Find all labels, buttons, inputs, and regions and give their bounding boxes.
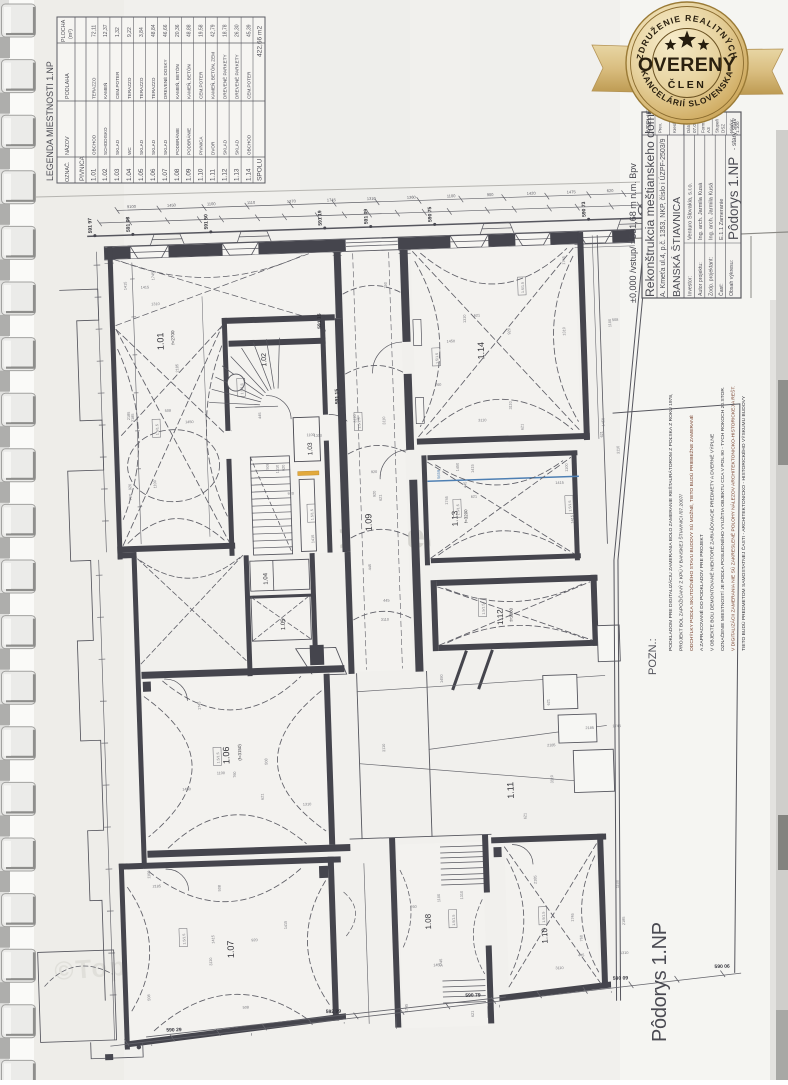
svg-text:26,30: 26,30 xyxy=(234,24,240,37)
svg-text:OBCHOD: OBCHOD xyxy=(246,134,251,155)
svg-text:Zodp. projektant:: Zodp. projektant: xyxy=(708,257,714,296)
svg-text:591 09: 591 09 xyxy=(363,209,370,225)
svg-text:CEM.POTER: CEM.POTER xyxy=(199,71,204,99)
svg-text:1415: 1415 xyxy=(284,921,288,930)
svg-text:1415: 1415 xyxy=(311,535,315,544)
svg-text:CEM.POTER: CEM.POTER xyxy=(115,71,120,99)
svg-text:1475: 1475 xyxy=(567,189,577,194)
svg-text:3110: 3110 xyxy=(478,418,486,422)
svg-text:591 97: 591 97 xyxy=(87,218,94,234)
svg-text:1100: 1100 xyxy=(153,480,157,488)
svg-text:POZN.:: POZN.: xyxy=(647,638,659,675)
svg-text:1.08: 1.08 xyxy=(424,913,434,929)
svg-text:1.12: 1.12 xyxy=(222,168,229,181)
svg-text:1.04: 1.04 xyxy=(263,572,269,585)
svg-text:1420: 1420 xyxy=(527,191,537,196)
svg-text:PODBRÁNIE: PODBRÁNIE xyxy=(174,128,180,155)
svg-text:1100: 1100 xyxy=(437,894,441,902)
svg-text:1415: 1415 xyxy=(570,515,574,524)
svg-text:E.1.1 Zameranie: E.1.1 Zameranie xyxy=(719,199,725,240)
svg-text:1.5/1.5: 1.5/1.5 xyxy=(521,282,525,293)
svg-text:1.04: 1.04 xyxy=(126,168,133,181)
svg-text:9,22: 9,22 xyxy=(127,27,133,37)
svg-text:1745: 1745 xyxy=(562,256,566,265)
svg-text:OBCHOD: OBCHOD xyxy=(91,134,96,155)
svg-text:760: 760 xyxy=(233,771,237,777)
svg-text:621: 621 xyxy=(471,495,477,499)
svg-text:1310: 1310 xyxy=(460,891,464,900)
svg-text:1450: 1450 xyxy=(440,674,444,683)
svg-text:1100: 1100 xyxy=(616,880,620,888)
svg-text:DVOR: DVOR xyxy=(211,141,216,155)
svg-text:Pôdorys 1.NP: Pôdorys 1.NP xyxy=(726,157,741,240)
svg-text:760: 760 xyxy=(435,383,441,387)
svg-text:Pôdorys 1.NP: Pôdorys 1.NP xyxy=(649,922,671,1042)
svg-text:1100: 1100 xyxy=(447,193,457,198)
svg-text:LEGENDA MIESTNOSTI 1.NP: LEGENDA MIESTNOSTI 1.NP xyxy=(45,61,55,181)
svg-text:3110: 3110 xyxy=(555,966,563,970)
svg-text:PIVNICA: PIVNICA xyxy=(79,155,86,181)
svg-text:590 79: 590 79 xyxy=(465,992,481,999)
svg-text:1415: 1415 xyxy=(141,285,150,289)
svg-text:920: 920 xyxy=(282,465,286,471)
svg-text:Prev.: Prev. xyxy=(658,123,663,133)
svg-text:ČLEN: ČLEN xyxy=(668,78,707,91)
svg-text:920: 920 xyxy=(507,328,511,334)
svg-text:445: 445 xyxy=(368,564,372,570)
svg-text:1360: 1360 xyxy=(407,194,417,199)
svg-text:Ing. arch. Jarmila Kusá: Ing. arch. Jarmila Kusá xyxy=(708,182,714,240)
svg-text:508: 508 xyxy=(264,758,268,764)
svg-text:620: 620 xyxy=(607,188,615,193)
svg-text:1.5/1.5: 1.5/1.5 xyxy=(216,752,220,763)
svg-text:445: 445 xyxy=(258,412,262,418)
svg-text:1450: 1450 xyxy=(456,463,460,472)
svg-text:590 29: 590 29 xyxy=(166,1027,182,1034)
svg-text:1745: 1745 xyxy=(405,1004,409,1013)
svg-text:1745: 1745 xyxy=(151,272,155,281)
svg-text:1450: 1450 xyxy=(601,418,605,427)
svg-text:Mierka:: Mierka: xyxy=(729,119,734,133)
svg-text:591 15: 591 15 xyxy=(334,389,341,405)
svg-text:KAMEŇ, BETÓN: KAMEŇ, BETÓN xyxy=(174,64,180,99)
svg-text:2185: 2185 xyxy=(533,875,537,884)
svg-text:1745: 1745 xyxy=(327,197,337,202)
svg-text:621: 621 xyxy=(379,494,383,500)
svg-text:A ZAPRACOVANÉ DO PODKLADOV PRE: A ZAPRACOVANÉ DO PODKLADOV PRE PROJEKT xyxy=(698,534,705,651)
svg-text:1450: 1450 xyxy=(185,420,194,424)
svg-text:1:100: 1:100 xyxy=(735,121,740,133)
svg-text:1100: 1100 xyxy=(565,463,569,471)
svg-text:1.10: 1.10 xyxy=(198,168,205,181)
svg-text:760: 760 xyxy=(128,494,132,500)
svg-text:1.01: 1.01 xyxy=(155,332,166,350)
svg-text:(f=3150): (f=3150) xyxy=(237,744,243,761)
svg-text:1450: 1450 xyxy=(447,339,456,343)
svg-text:SPOLU: SPOLU xyxy=(257,158,264,181)
svg-text:1.13: 1.13 xyxy=(233,168,240,181)
svg-text:1310: 1310 xyxy=(303,802,312,806)
svg-text:CEM.POTER: CEM.POTER xyxy=(246,71,251,99)
svg-text:SCHODISKO: SCHODISKO xyxy=(103,127,108,155)
svg-text:1100: 1100 xyxy=(207,201,217,206)
svg-text:Autor projektu:: Autor projektu: xyxy=(698,262,704,296)
svg-text:DREVENÉ PARKETY: DREVENÉ PARKETY xyxy=(233,54,239,99)
svg-text:46,66: 46,66 xyxy=(163,24,169,37)
svg-text:KAMEŇ, BETÓN, ZEM: KAMEŇ, BETÓN, ZEM xyxy=(210,52,216,99)
svg-text:f=2700: f=2700 xyxy=(170,330,175,345)
svg-text:1310: 1310 xyxy=(463,314,467,323)
svg-text:SKLAD: SKLAD xyxy=(139,139,144,155)
svg-text:1450: 1450 xyxy=(167,202,177,207)
svg-text:DSZ: DSZ xyxy=(721,124,726,133)
svg-text:445: 445 xyxy=(383,599,389,603)
svg-text:V DIGITALIZÁCII ZAMERANIA NIE: V DIGITALIZÁCII ZAMERANIA NIE SÚ ZAKRESL… xyxy=(729,386,736,651)
svg-text:590 75: 590 75 xyxy=(427,206,434,222)
svg-text:1.5/1.5: 1.5/1.5 xyxy=(435,353,439,364)
svg-text:3110: 3110 xyxy=(209,957,213,965)
svg-text:760: 760 xyxy=(410,905,416,909)
svg-text:PIVNICA: PIVNICA xyxy=(199,136,204,155)
svg-text:621: 621 xyxy=(261,794,265,800)
svg-text:OZNAČ.: OZNAČ. xyxy=(64,162,71,182)
svg-text:1.5/1.5: 1.5/1.5 xyxy=(456,504,460,515)
svg-text:KAMEŇ, BETÓN: KAMEŇ, BETÓN xyxy=(186,64,192,99)
svg-text:DREVENÉ DOSKY: DREVENÉ DOSKY xyxy=(162,59,168,99)
svg-text:SKLAD: SKLAD xyxy=(115,139,120,155)
svg-text:1.14: 1.14 xyxy=(476,342,487,360)
svg-text:TERAZZO: TERAZZO xyxy=(151,77,156,99)
svg-text:1.5/1.5: 1.5/1.5 xyxy=(310,509,314,520)
svg-text:422,66 m2: 422,66 m2 xyxy=(257,26,264,57)
svg-text:1100: 1100 xyxy=(307,433,315,437)
svg-text:SKLAD: SKLAD xyxy=(223,139,228,155)
svg-text:920: 920 xyxy=(251,938,257,942)
svg-text:621: 621 xyxy=(471,1011,475,1017)
svg-text:Obsah výkresu:: Obsah výkresu: xyxy=(729,260,735,296)
svg-text:±0,000 /vstup/ =591,68 m n.m.: ±0,000 /vstup/ =591,68 m n.m. Bpv xyxy=(628,163,638,303)
svg-text:1.07: 1.07 xyxy=(162,168,169,181)
svg-text:1.05: 1.05 xyxy=(281,618,287,631)
svg-text:Ing. arch. Jarmila Kusá: Ing. arch. Jarmila Kusá xyxy=(698,182,704,240)
svg-text:1.05: 1.05 xyxy=(138,168,145,181)
svg-text:PODLAHA: PODLAHA xyxy=(65,73,71,99)
svg-text:PLOCHA: PLOCHA xyxy=(61,19,67,42)
svg-text:900: 900 xyxy=(487,192,495,197)
svg-text:1.5/1.5: 1.5/1.5 xyxy=(357,417,361,428)
svg-text:920: 920 xyxy=(371,470,377,474)
svg-text:KAMEŇ: KAMEŇ xyxy=(102,83,108,99)
svg-text:2185: 2185 xyxy=(152,884,161,888)
svg-text:1310: 1310 xyxy=(276,465,280,474)
svg-text:Stupeň: Stupeň xyxy=(715,119,720,133)
svg-text:508: 508 xyxy=(165,409,171,413)
svg-text:5659: 5659 xyxy=(436,469,441,479)
svg-text:590 73: 590 73 xyxy=(581,201,588,217)
svg-text:1415: 1415 xyxy=(123,282,127,291)
svg-text:445: 445 xyxy=(578,953,584,957)
svg-text:SKLAD: SKLAD xyxy=(234,139,239,155)
svg-text:1310: 1310 xyxy=(151,302,160,306)
svg-text:3,84: 3,84 xyxy=(139,27,145,37)
svg-text:A3: A3 xyxy=(706,127,711,133)
svg-text:1.11: 1.11 xyxy=(210,169,217,181)
svg-text:591 19: 591 19 xyxy=(317,210,324,226)
svg-text:72,11: 72,11 xyxy=(91,25,97,37)
svg-text:45,39: 45,39 xyxy=(246,24,252,37)
svg-text:760: 760 xyxy=(384,282,388,288)
svg-text:1.14: 1.14 xyxy=(245,168,252,181)
svg-text:1.5/1.5: 1.5/1.5 xyxy=(452,915,456,926)
svg-text:1310: 1310 xyxy=(367,196,377,201)
svg-text:SKLAD: SKLAD xyxy=(151,139,156,155)
svg-text:1.09: 1.09 xyxy=(186,168,193,181)
svg-text:508: 508 xyxy=(218,885,222,891)
svg-text:Form.: Form. xyxy=(700,122,705,133)
svg-text:A. Kmeťa ul.4, p.č. 1353, NKP,: A. Kmeťa ul.4, p.č. 1353, NKP, číslo i Ú… xyxy=(658,138,667,297)
svg-text:Investor:: Investor: xyxy=(688,276,694,296)
svg-text:2185: 2185 xyxy=(585,726,594,730)
svg-text:Časť:: Časť: xyxy=(718,283,725,296)
svg-text:9100: 9100 xyxy=(127,204,137,209)
svg-text:1.10: 1.10 xyxy=(540,927,550,943)
svg-text:621: 621 xyxy=(523,813,527,819)
svg-text:3110: 3110 xyxy=(382,416,386,424)
svg-text:42,79: 42,79 xyxy=(211,24,217,37)
svg-text:1.03: 1.03 xyxy=(307,442,314,455)
svg-text:590 09: 590 09 xyxy=(613,975,629,982)
svg-text:TERAZZO: TERAZZO xyxy=(91,77,96,99)
svg-text:920: 920 xyxy=(373,491,377,497)
svg-text:1.5/1.5: 1.5/1.5 xyxy=(155,424,159,435)
svg-text:SKLAD: SKLAD xyxy=(163,139,168,155)
svg-text:18,78: 18,78 xyxy=(223,24,229,37)
svg-text:760: 760 xyxy=(579,935,583,941)
svg-text:1100: 1100 xyxy=(217,771,225,775)
svg-text:1415: 1415 xyxy=(211,935,215,944)
svg-text:1415: 1415 xyxy=(471,464,475,473)
svg-text:TIETO BUDÚ PREDMETOM SAMOSTATN: TIETO BUDÚ PREDMETOM SAMOSTATNEJ ČASTI -… xyxy=(740,395,747,651)
svg-text:1.02: 1.02 xyxy=(102,168,109,181)
svg-text:TERAZZO: TERAZZO xyxy=(139,77,144,99)
svg-text:590 06: 590 06 xyxy=(714,964,730,971)
svg-text:2185: 2185 xyxy=(131,413,135,422)
svg-text:PODKLADOM PRE DIGITALIZÁCIU ZA: PODKLADOM PRE DIGITALIZÁCIU ZAMERANIA BO… xyxy=(667,394,674,651)
svg-text:3110: 3110 xyxy=(509,401,513,409)
svg-text:48,84: 48,84 xyxy=(151,24,157,37)
svg-text:TERAZZO: TERAZZO xyxy=(127,77,132,99)
svg-text:1,32: 1,32 xyxy=(115,27,121,37)
svg-text:2185: 2185 xyxy=(547,743,556,747)
svg-text:2185: 2185 xyxy=(175,364,179,373)
svg-text:1.07: 1.07 xyxy=(225,940,236,958)
svg-text:591 15: 591 15 xyxy=(317,313,324,329)
svg-text:19,58: 19,58 xyxy=(199,24,205,37)
svg-text:20,36: 20,36 xyxy=(175,24,181,37)
svg-text:621: 621 xyxy=(547,699,551,705)
svg-text:1450: 1450 xyxy=(182,787,191,791)
svg-text:1.12: 1.12 xyxy=(496,609,506,625)
svg-text:1.02: 1.02 xyxy=(261,353,268,367)
svg-text:1100: 1100 xyxy=(147,870,151,878)
svg-text:3110: 3110 xyxy=(550,775,554,783)
svg-text:1.06: 1.06 xyxy=(150,168,157,181)
svg-text:Rekonštrukcia meštianskeho dom: Rekonštrukcia meštianskeho domu xyxy=(643,107,657,297)
svg-text:1.08: 1.08 xyxy=(174,168,181,181)
svg-text:1745: 1745 xyxy=(612,724,621,728)
svg-text:1745: 1745 xyxy=(571,913,575,922)
svg-text:920: 920 xyxy=(288,492,294,496)
svg-text:(m²): (m²) xyxy=(68,29,74,39)
svg-text:1310: 1310 xyxy=(620,951,629,955)
svg-text:48,88: 48,88 xyxy=(187,24,193,37)
svg-text:1.5/1.5: 1.5/1.5 xyxy=(481,603,485,614)
svg-text:1.01: 1.01 xyxy=(90,168,97,181)
svg-text:508: 508 xyxy=(147,994,151,1000)
svg-text:DREVENÉ PARKETY: DREVENÉ PARKETY xyxy=(222,54,228,99)
svg-text:NÁZOV: NÁZOV xyxy=(64,136,71,155)
svg-text:1415: 1415 xyxy=(555,481,564,485)
svg-text:OVERENÝ: OVERENÝ xyxy=(638,52,736,76)
svg-text:508: 508 xyxy=(266,463,270,469)
svg-text:508: 508 xyxy=(612,318,618,322)
svg-text:592 99: 592 99 xyxy=(326,1009,342,1016)
svg-text:BANSKÁ ŠTIAVNICA: BANSKÁ ŠTIAVNICA xyxy=(670,197,683,297)
svg-text:621: 621 xyxy=(600,431,604,437)
svg-text:1.5/1.5: 1.5/1.5 xyxy=(240,383,244,394)
svg-text:591 08: 591 08 xyxy=(125,216,132,232)
svg-text:2185: 2185 xyxy=(622,916,626,925)
svg-text:1.5/1.5: 1.5/1.5 xyxy=(182,934,186,945)
svg-text:1110: 1110 xyxy=(247,200,256,205)
svg-text:1310: 1310 xyxy=(562,327,566,336)
svg-text:f=3000: f=3000 xyxy=(508,607,513,621)
svg-text:1745: 1745 xyxy=(445,496,449,505)
svg-text:1310: 1310 xyxy=(314,434,323,438)
svg-text:1.5/1.5: 1.5/1.5 xyxy=(542,912,546,923)
svg-text:621: 621 xyxy=(474,313,480,317)
svg-text:621: 621 xyxy=(520,424,524,430)
svg-text:3110: 3110 xyxy=(381,618,389,622)
svg-text:508: 508 xyxy=(243,1005,249,1009)
svg-text:445: 445 xyxy=(463,482,467,488)
svg-text:Venturo Slovakia, s.r.o.: Venturo Slovakia, s.r.o. xyxy=(688,182,694,240)
svg-text:1450: 1450 xyxy=(433,963,442,967)
svg-text:WC: WC xyxy=(127,147,132,155)
svg-text:920: 920 xyxy=(128,484,132,490)
svg-text:1745: 1745 xyxy=(197,701,201,710)
svg-text:1.11: 1.11 xyxy=(505,782,516,799)
svg-text:3110: 3110 xyxy=(382,744,386,752)
svg-text:12,37: 12,37 xyxy=(103,24,109,37)
svg-text:1.03: 1.03 xyxy=(114,168,121,181)
svg-text:3110: 3110 xyxy=(616,446,620,454)
svg-text:591 50: 591 50 xyxy=(203,214,210,230)
svg-text:PODBRÁNIE: PODBRÁNIE xyxy=(186,128,192,155)
svg-text:1.06: 1.06 xyxy=(221,746,232,764)
svg-text:1.5/1.5: 1.5/1.5 xyxy=(568,500,572,511)
svg-text:f=3200: f=3200 xyxy=(463,509,468,523)
svg-text:1370: 1370 xyxy=(287,198,297,203)
svg-text:1.09: 1.09 xyxy=(363,514,374,532)
